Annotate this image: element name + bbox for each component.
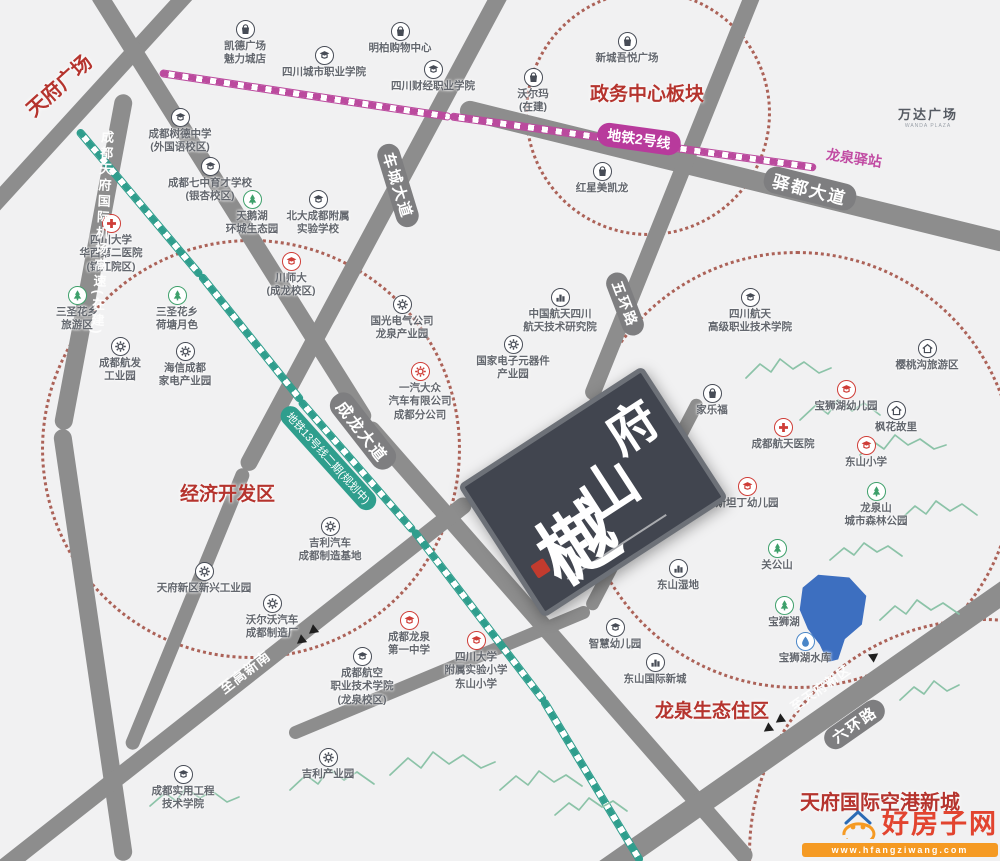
watermark-house-icon bbox=[838, 805, 878, 839]
map-poi: 国家电子元器件产业园 bbox=[447, 335, 579, 381]
gear-icon bbox=[319, 748, 338, 767]
cap-icon bbox=[353, 647, 372, 666]
poi-label: 成都航空 bbox=[341, 667, 383, 679]
gear-icon bbox=[504, 335, 523, 354]
poi-label: 技术学院 bbox=[162, 798, 204, 810]
watermark-url: www.hfangziwang.com bbox=[802, 843, 998, 857]
poi-label: 魅力城店 bbox=[224, 53, 266, 65]
poi-label: 四川城市职业学院 bbox=[282, 66, 366, 78]
poi-label: 中国航天四川 bbox=[529, 308, 592, 320]
map-poi: 吉利产业园 bbox=[262, 748, 394, 780]
poi-label: 实验学校 bbox=[297, 223, 339, 235]
poi-label: 东山国际新城 bbox=[624, 673, 687, 685]
poi-label: 产业园 bbox=[497, 368, 529, 380]
poi-label: 明柏购物中心 bbox=[369, 42, 432, 54]
direction-arrow bbox=[773, 713, 786, 726]
poi-label: 国家电子元器件 bbox=[476, 355, 550, 367]
location-map: 凯德广场魅力城店明柏购物中心四川城市职业学院四川财经职业学院沃尔玛(在建)新城吾… bbox=[0, 0, 1000, 861]
cap-icon bbox=[174, 765, 193, 784]
wanda-plaza-name: 万达广场 bbox=[898, 104, 958, 123]
district-longquan-eco: 龙泉生态住区 bbox=[655, 696, 769, 723]
poi-label: 凯德广场 bbox=[224, 40, 266, 52]
poi-label: 第一中学 bbox=[388, 644, 430, 656]
district-economic-zone: 经济开发区 bbox=[180, 479, 275, 506]
cap-icon bbox=[309, 190, 328, 209]
direction-arrow bbox=[761, 722, 774, 735]
road-label-yidu: 驿都大道 bbox=[761, 164, 859, 213]
district-government-center: 政务中心板块 bbox=[590, 79, 704, 106]
cap-icon bbox=[400, 611, 419, 630]
poi-label: 成都实用工程 bbox=[152, 785, 215, 797]
bag-icon bbox=[391, 22, 410, 41]
map-poi: 四川财经职业学院 bbox=[367, 60, 499, 92]
watermark: 好房子网 www.hfangziwang.com bbox=[802, 802, 998, 857]
bldg-icon bbox=[646, 653, 665, 672]
poi-label: 北大成都附属 bbox=[287, 210, 350, 222]
map-poi: 中国航天四川航天技术研究院 bbox=[494, 288, 626, 334]
cap-icon bbox=[606, 618, 625, 637]
wanda-plaza-english: WANDA PLAZA bbox=[898, 123, 958, 129]
poi-label: 吉利产业园 bbox=[302, 768, 355, 780]
poi-label: 航天技术研究院 bbox=[523, 321, 597, 333]
cap-icon bbox=[315, 46, 334, 65]
tree-icon bbox=[243, 190, 262, 209]
cap-icon bbox=[424, 60, 443, 79]
poi-label: 智慧幼儿园 bbox=[589, 638, 642, 650]
poi-label: 东山小学 bbox=[455, 678, 497, 690]
poi-label: 成都龙泉 bbox=[388, 631, 430, 643]
wanda-plaza-logo: 万达广场 WANDA PLAZA bbox=[898, 104, 958, 129]
metro-line2-segment bbox=[159, 69, 452, 121]
watermark-name: 好房子网 bbox=[882, 802, 998, 841]
map-poi: 四川城市职业学院 bbox=[258, 46, 390, 78]
bag-icon bbox=[236, 20, 255, 39]
map-poi: 明柏购物中心 bbox=[334, 22, 466, 54]
bldg-icon bbox=[551, 288, 570, 307]
metro-station-longquanyi: 龙泉驿站 bbox=[825, 144, 883, 172]
map-poi: 凯德广场魅力城店 bbox=[179, 20, 311, 66]
